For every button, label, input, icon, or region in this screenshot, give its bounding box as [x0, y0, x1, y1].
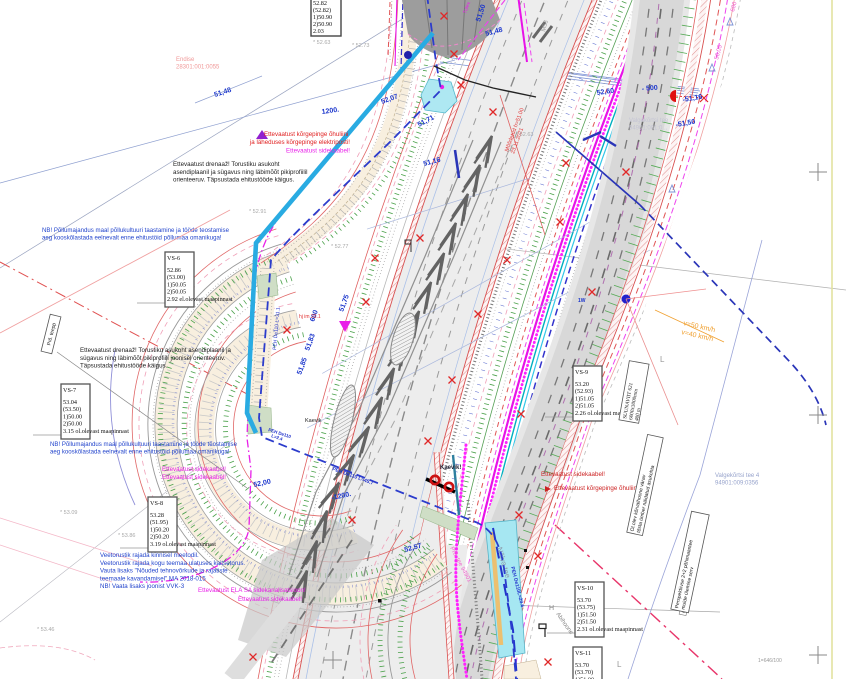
svg-text:* 52.73: * 52.73 — [352, 43, 369, 49]
svg-text:Ettevaatust sidekaabel! Etteva: Ettevaatust sidekaabel! Ettevaatust side… — [162, 466, 228, 481]
svg-text:52,00: 52,00 — [253, 478, 272, 489]
svg-text:51,85: 51,85 — [296, 357, 309, 376]
svg-text:Valgekõrtsi tee 4 94901:009:03: Valgekõrtsi tee 4 94901:009:0356 — [715, 473, 761, 487]
svg-text:NB! Põllumajandus maal põlluku: NB! Põllumajandus maal põllukultuuri taa… — [50, 441, 239, 456]
svg-text:* 52.63: * 52.63 — [313, 40, 330, 46]
svg-text:680: 680 — [730, 1, 739, 13]
svg-text:VS-8: VS-8 — [150, 500, 163, 507]
svg-text:Ettevaatust sidekaabel!: Ettevaatust sidekaabel! — [286, 148, 350, 155]
svg-text:51,83: 51,83 — [304, 333, 317, 352]
svg-text:* 53.46: * 53.46 — [37, 627, 54, 633]
svg-text:* 53.09: * 53.09 — [60, 510, 77, 516]
svg-text:52,60: 52,60 — [596, 88, 614, 97]
svg-text:VS-6: VS-6 — [167, 255, 180, 262]
svg-text:Valgekõrtsi tee 94901:001:0...: Valgekõrtsi tee 94901:001:0... — [629, 118, 670, 132]
svg-text:1200.: 1200. — [321, 107, 339, 116]
svg-text:Ettevaatust sidekaabel!: Ettevaatust sidekaabel! — [541, 471, 605, 478]
svg-text:NB! Põllumajandus maal põlluku: NB! Põllumajandus maal põllukultuuri taa… — [42, 227, 231, 242]
svg-text:VS-7: VS-7 — [63, 387, 76, 394]
svg-text:53.70 (53.75) 1)51.50 2)51.50: 53.70 (53.75) 1)51.50 2)51.50 2.31 ol.ol… — [577, 597, 643, 633]
svg-text:Kaevik: Kaevik — [305, 418, 322, 424]
svg-text:* 52.77: * 52.77 — [331, 244, 348, 250]
svg-text:VS-11: VS-11 — [575, 650, 591, 657]
svg-text:1=646/100: 1=646/100 — [758, 658, 782, 664]
svg-text:L: L — [660, 355, 665, 364]
svg-text:Endise 28301:001:0055: Endise 28301:001:0055 — [176, 57, 220, 71]
svg-text:H: H — [549, 605, 554, 612]
svg-text:Ettevaatust drenaaž! Torustiku: Ettevaatust drenaaž! Torustiku asukoht a… — [173, 161, 309, 184]
svg-text:51,71: 51,71 — [417, 114, 436, 128]
svg-text:53.04 (53.50) 1)50.00 2)50.00: 53.04 (53.50) 1)50.00 2)50.00 3.15 ol.ol… — [63, 399, 129, 435]
svg-text:Ettevaatust kõrgepinge õhuliin: Ettevaatust kõrgepinge õhuliini ja lähed… — [249, 131, 350, 146]
svg-text:Ettevaatust sidekaabel!: Ettevaatust sidekaabel! — [238, 596, 302, 603]
svg-text:400 m: 400 m — [634, 408, 642, 422]
svg-text:* 52.91: * 52.91 — [249, 209, 266, 215]
svg-text:Ettevaatust drenaaž! Torustiku: Ettevaatust drenaaž! Torustiku asukoht a… — [80, 347, 233, 370]
svg-text:L: L — [617, 660, 622, 669]
svg-text:VS-9: VS-9 — [575, 369, 588, 376]
svg-text:- 500: - 500 — [642, 85, 659, 93]
svg-text:* 53.86: * 53.86 — [118, 533, 135, 539]
svg-text:Ettevaatust kõrgepinge õhuliin: Ettevaatust kõrgepinge õhuliin! — [554, 485, 639, 492]
svg-text:1W: 1W — [578, 298, 586, 304]
svg-text:51,48: 51,48 — [213, 87, 232, 99]
svg-text:* 52.63: * 52.63 — [516, 132, 533, 138]
svg-text:Kaevik!: Kaevik! — [440, 465, 461, 471]
svg-text:VS-10: VS-10 — [577, 585, 593, 592]
svg-text:Ettevaatust ELA SA sidekanalis: Ettevaatust ELA SA sidekanalisatsioon! — [198, 587, 306, 594]
svg-text:hj im 22.1: hj im 22.1 — [299, 314, 321, 320]
